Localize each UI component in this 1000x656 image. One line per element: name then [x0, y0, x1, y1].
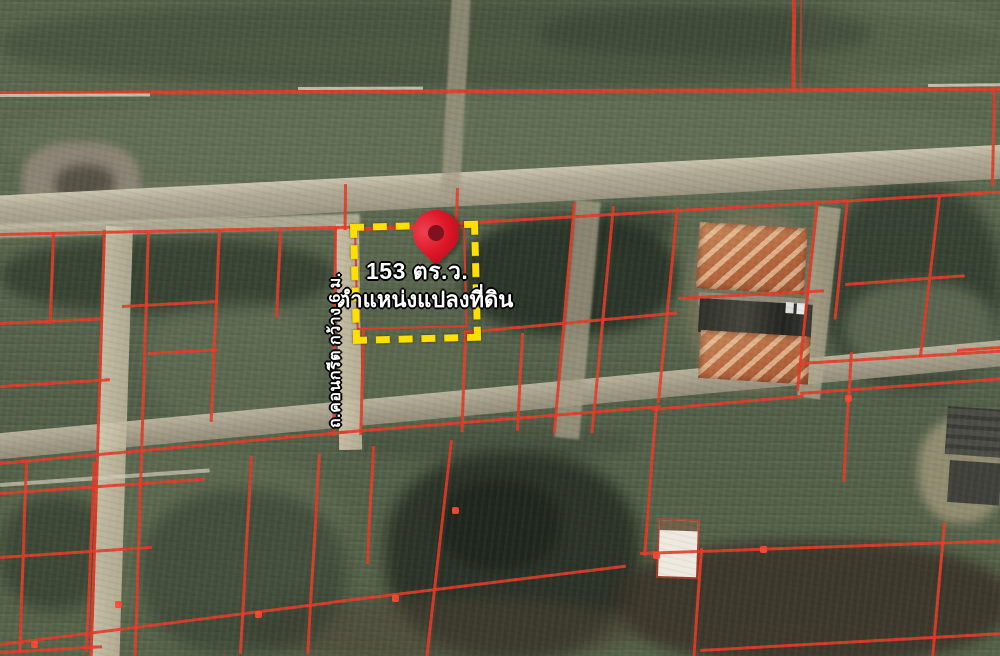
- pin-hole: [428, 225, 444, 241]
- building-roof: [945, 406, 1000, 458]
- building-roof: [947, 460, 1000, 506]
- white-shed: [658, 520, 698, 577]
- terrain-patch: [540, 8, 870, 58]
- parcel-boundary-line: [0, 378, 110, 388]
- boundary-node: [392, 595, 399, 602]
- parcel-boundary-line: [791, 0, 796, 92]
- boundary-node: [760, 546, 767, 553]
- satellite-map: 153 ตร.ว. ตำแหน่งแปลงที่ดิน ถ.คอนกรีต กว…: [0, 0, 1000, 656]
- boundary-node: [255, 611, 262, 618]
- house-roof: [696, 222, 808, 294]
- vegetation-patch: [440, 480, 560, 570]
- parcel-boundary-line: [643, 406, 658, 556]
- field-boundary-light: [298, 87, 423, 90]
- boundary-node: [115, 601, 122, 608]
- boundary-node: [845, 395, 852, 402]
- vehicle: [785, 302, 794, 313]
- road-name-label: ถ.คอนกรีต กว้าง 6 ม.: [323, 272, 348, 428]
- house-roof: [698, 330, 811, 385]
- boundary-node: [452, 507, 459, 514]
- boundary-node: [31, 641, 38, 648]
- boundary-node: [653, 552, 660, 559]
- field-boundary-light: [0, 93, 150, 97]
- parcel-boundary-line: [366, 446, 375, 564]
- parcel-boundary-line: [652, 395, 804, 411]
- plot-position-label: ตำแหน่งแปลงที่ดิน: [336, 282, 513, 317]
- parcel-boundary-line: [344, 184, 347, 230]
- field-boundary-light: [928, 83, 1000, 87]
